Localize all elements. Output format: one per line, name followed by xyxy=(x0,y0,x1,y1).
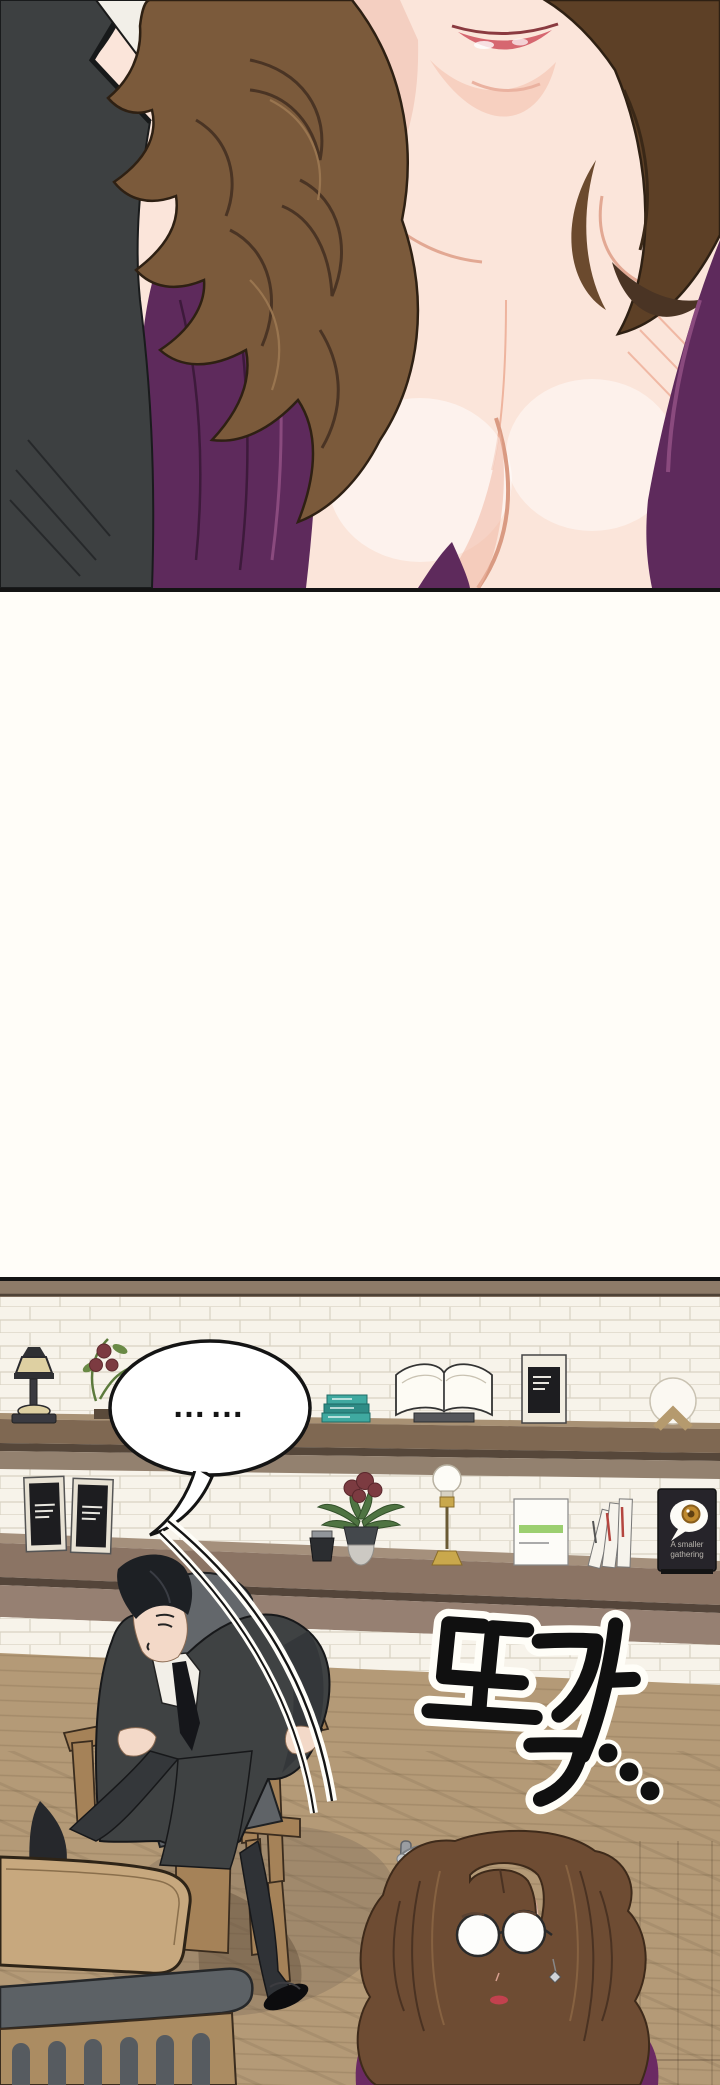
panel-cafe: …… xyxy=(0,1277,720,2085)
green-label-book xyxy=(514,1499,568,1565)
speech-bubble-text: …… xyxy=(172,1387,248,1425)
egg-sign-line1: A smaller xyxy=(671,1540,704,1549)
sfx-text-data: 또각 xyxy=(430,1651,614,1763)
woman-hair xyxy=(358,1831,649,2085)
bench xyxy=(0,1969,252,2085)
upper-shelf xyxy=(0,1413,720,1479)
comic-page: …… xyxy=(0,0,720,2085)
framed-art-1 xyxy=(24,1476,67,1551)
egg-sign-line2: gathering xyxy=(670,1550,703,1559)
panel-closeup-art xyxy=(0,0,720,588)
panel-closeup xyxy=(0,0,720,592)
panel-cafe-art: …… xyxy=(0,1281,720,2085)
teal-books xyxy=(322,1395,370,1422)
egg-sign: A smaller gathering xyxy=(658,1489,716,1574)
table xyxy=(0,1857,190,1973)
black-framed-book xyxy=(522,1355,566,1423)
framed-art-2 xyxy=(71,1478,114,1553)
svg-text:…: … xyxy=(600,1737,660,1804)
black-mug xyxy=(310,1531,334,1561)
sfx-trailing-dots: … xyxy=(595,1737,664,1805)
